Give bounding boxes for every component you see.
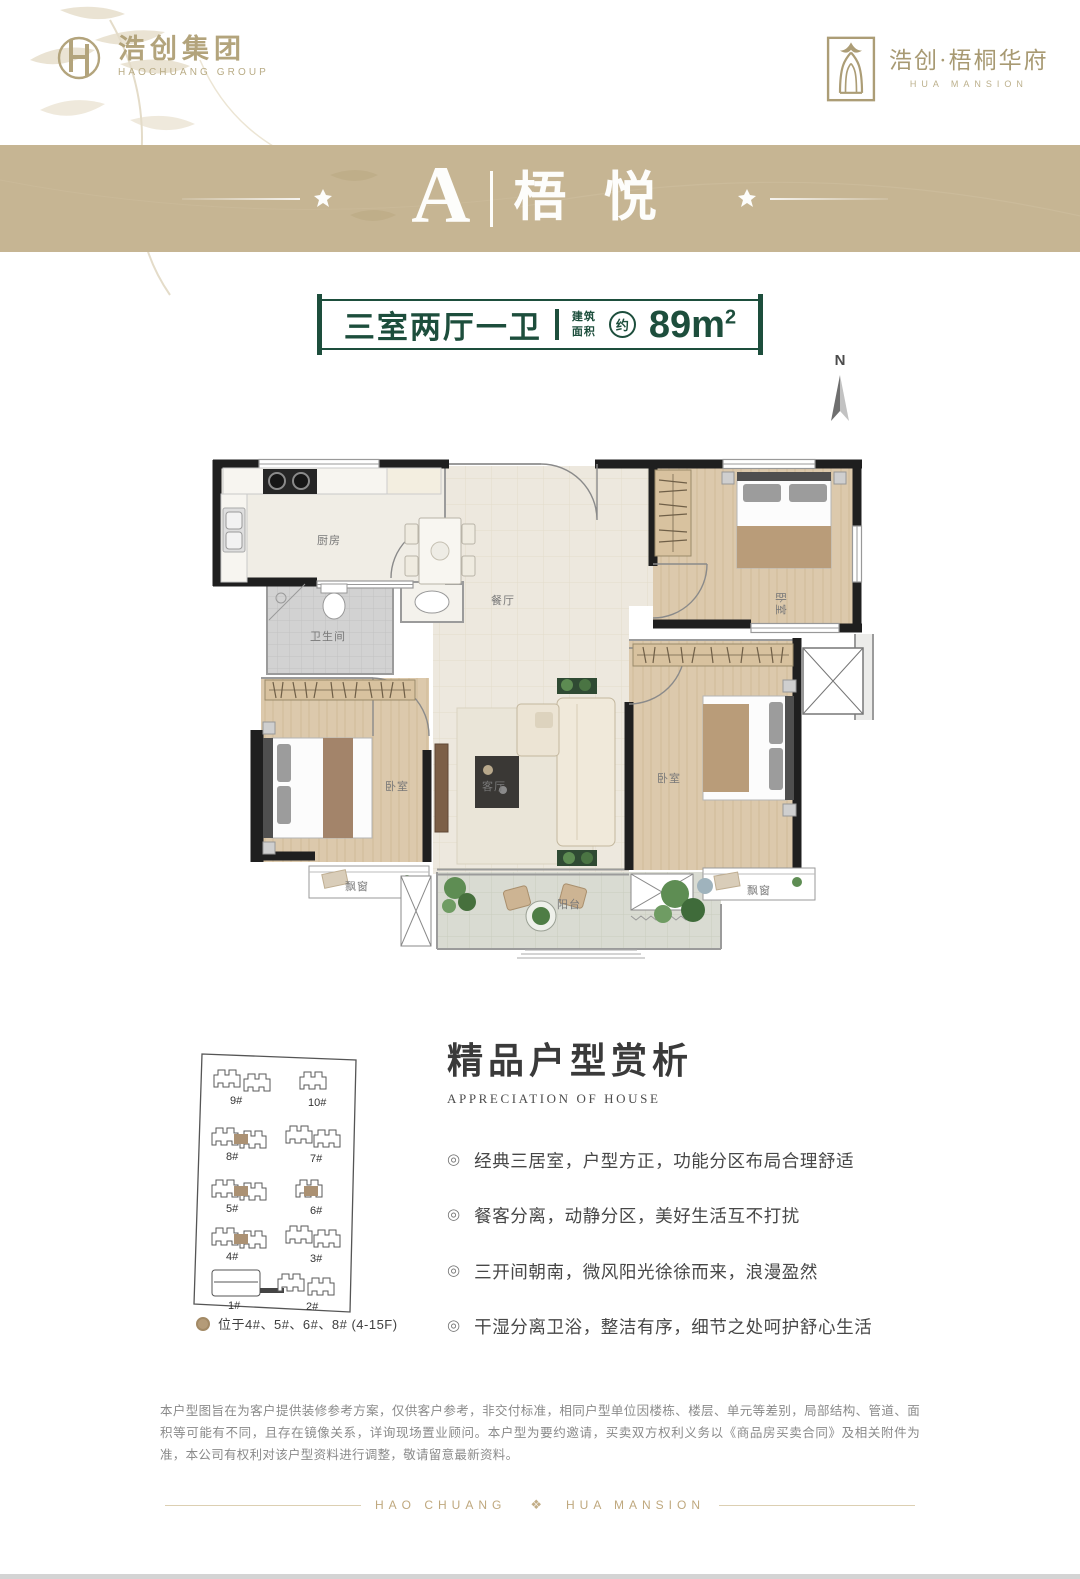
building-1-shape <box>212 1270 260 1296</box>
building-label: 9# <box>230 1095 243 1107</box>
feature-item: ◎ 三开间朝南，微风阳光徐徐而来，浪漫盈然 <box>447 1260 899 1285</box>
section-title: 精品户型赏析 <box>447 1042 899 1082</box>
unit-banner: A 梧 悦 <box>0 145 1080 252</box>
layout-spec: 三室两厅一卫 <box>344 302 542 347</box>
feature-item: ◎ 干湿分离卫浴，整洁有序，细节之处呵护舒心生活 <box>447 1315 899 1340</box>
group-logo-icon <box>50 28 108 86</box>
footer-leaf-icon: ❖ <box>530 1497 542 1513</box>
section-subtitle: APPRECIATION OF HOUSE <box>447 1091 899 1107</box>
page-bottom-edge <box>0 1574 1080 1579</box>
room-label-bedroom-right: 卧室 <box>657 771 681 785</box>
building-label: 5# <box>226 1203 239 1215</box>
building-label: 7# <box>310 1153 323 1165</box>
building-label: 2# <box>306 1301 319 1313</box>
highlight-unit-5 <box>234 1186 248 1196</box>
group-logo: 浩创集团 HAOCHUANG GROUP <box>50 28 269 86</box>
highlight-unit-4 <box>234 1234 248 1244</box>
compass: N <box>822 352 858 430</box>
legend-text: 位于4#、5#、6#、8# (4-15F) <box>218 1314 398 1333</box>
site-legend: 位于4#、5#、6#、8# (4-15F) <box>196 1314 398 1333</box>
building-label: 1# <box>228 1300 241 1312</box>
room-label-bathroom: 卫生间 <box>310 629 346 643</box>
group-logo-subtitle: HAOCHUANG GROUP <box>118 67 269 78</box>
room-label-living: 客厅 <box>482 779 506 793</box>
building-label: 6# <box>310 1205 323 1217</box>
leaf-icon <box>736 188 758 210</box>
floor-plan: 厨房 餐厅 卫生间 卧室 卧室 客厅 卧室 阳台 飘窗 飘窗 <box>205 452 875 962</box>
room-label-bay-left: 飘窗 <box>345 879 369 893</box>
approx-circle: 约 <box>609 311 636 338</box>
feature-item: ◎ 餐客分离，动静分区，美好生活互不打扰 <box>447 1204 899 1229</box>
footer: HAO CHUANG ❖ HUA MANSION <box>165 1497 915 1513</box>
room-label-kitchen: 厨房 <box>317 534 341 547</box>
bullet-icon: ◎ <box>447 1149 460 1171</box>
ornament-line <box>770 198 888 200</box>
badge-divider <box>555 309 559 340</box>
highlight-unit-8 <box>234 1134 248 1144</box>
room-label-bay-right: 飘窗 <box>747 883 771 897</box>
group-logo-name: 浩创集团 <box>118 36 269 63</box>
room-label-balcony: 阳台 <box>557 897 581 911</box>
feature-item: ◎ 经典三居室，户型方正，功能分区布局合理舒适 <box>447 1149 899 1174</box>
feature-list: ◎ 经典三居室，户型方正，功能分区布局合理舒适 ◎ 餐客分离，动静分区，美好生活… <box>447 1149 899 1340</box>
building-label: 10# <box>308 1097 327 1109</box>
building-label: 4# <box>226 1251 239 1263</box>
appreciation-section: 精品户型赏析 APPRECIATION OF HOUSE ◎ 经典三居室，户型方… <box>447 1042 899 1340</box>
bullet-icon: ◎ <box>447 1204 460 1226</box>
unit-letter: A <box>411 154 470 236</box>
banner-ornament-right <box>736 188 888 210</box>
banner-title: A 梧 悦 <box>0 145 1080 252</box>
title-divider <box>490 171 493 227</box>
area-value: 89m2 <box>649 306 736 344</box>
building-label: 8# <box>226 1151 239 1163</box>
unit-name: 梧 悦 <box>513 172 668 225</box>
bedroom-top-furniture <box>655 470 846 568</box>
north-label: N <box>822 352 858 369</box>
footer-brand-right: HUA MANSION <box>566 1498 705 1512</box>
project-logo-subtitle: HUA MANSION <box>889 79 1049 89</box>
area-label: 建筑 面积 <box>572 310 596 339</box>
footer-brand-left: HAO CHUANG <box>375 1498 506 1512</box>
highlight-unit-6 <box>304 1186 318 1196</box>
room-label-dining: 餐厅 <box>491 593 515 607</box>
legend-dot-icon <box>196 1317 210 1331</box>
north-arrow-icon <box>824 369 856 425</box>
room-label-bedroom-top: 卧室 <box>774 592 788 616</box>
spec-badge: 三室两厅一卫 建筑 面积 约 89m2 <box>319 299 761 350</box>
footer-line-right <box>719 1505 915 1506</box>
project-logo: 浩创·梧桐华府 HUA MANSION <box>826 36 1049 102</box>
footer-line-left <box>165 1505 361 1506</box>
flyer-page: 浩创集团 HAOCHUANG GROUP 浩创·梧桐华府 HUA MANSION <box>0 0 1080 1579</box>
room-label-bedroom-left: 卧室 <box>385 779 409 793</box>
building-label: 3# <box>310 1253 323 1265</box>
project-logo-icon <box>826 36 876 102</box>
site-plan: 9# 10# 8# 7# 5# 6# 4# 3# 1# 2# <box>190 1048 370 1316</box>
bullet-icon: ◎ <box>447 1315 460 1337</box>
bullet-icon: ◎ <box>447 1260 460 1282</box>
disclaimer-text: 本户型图旨在为客户提供装修参考方案，仅供客户参考，非交付标准，相同户型单位因楼栋… <box>160 1401 920 1467</box>
project-logo-name: 浩创·梧桐华府 <box>889 49 1049 72</box>
